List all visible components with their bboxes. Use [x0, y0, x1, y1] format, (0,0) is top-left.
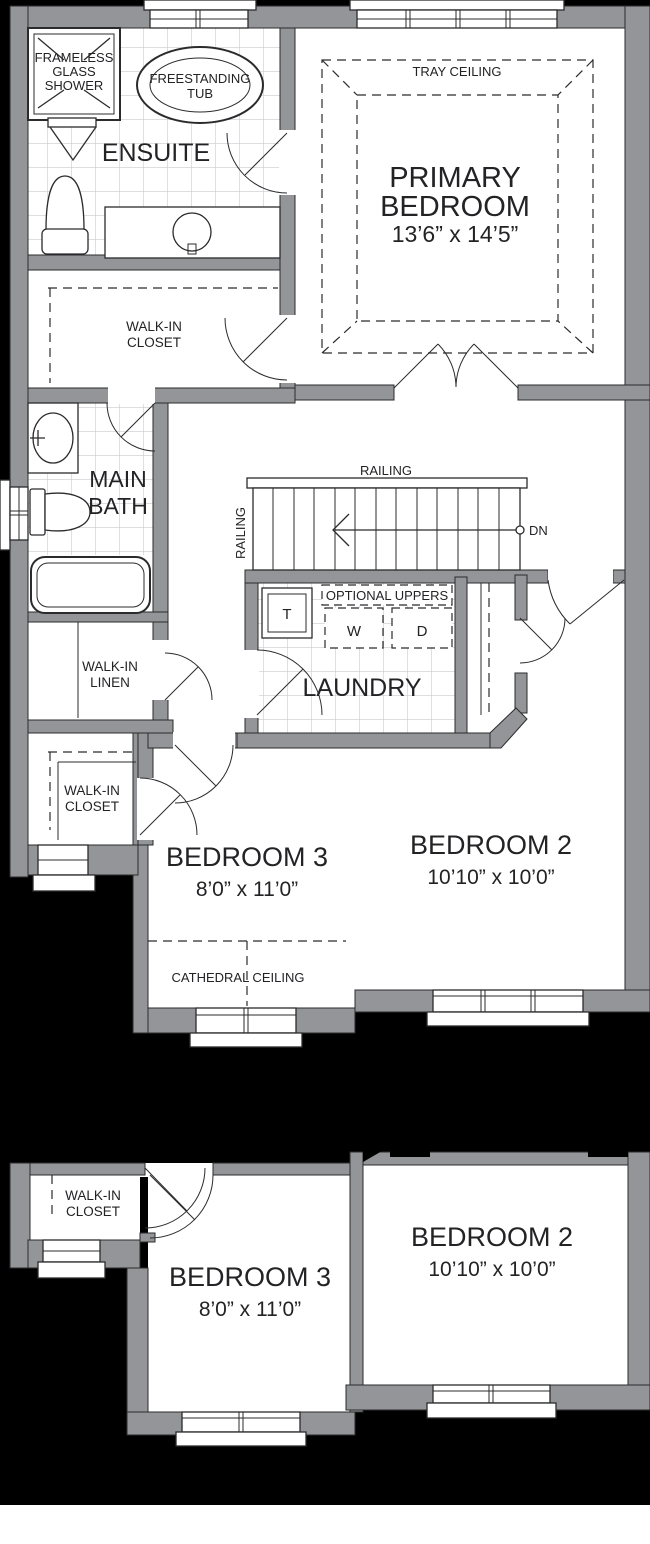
bedroom2-label: BEDROOM 2 — [410, 830, 572, 860]
bedroom2-window — [433, 990, 583, 1012]
closet-label-1: WALK-IN — [65, 1188, 121, 1203]
bedroom2-window — [433, 1385, 550, 1403]
primary-bedroom-label-1: PRIMARY — [389, 162, 521, 194]
bedroom3-dims: 8’0” x 11’0” — [199, 1298, 301, 1321]
washer-label: W — [347, 623, 362, 640]
shower-label-1: FRAMELESS — [35, 50, 114, 65]
door-gap — [140, 1163, 213, 1177]
window-sill — [350, 0, 564, 10]
window-sill — [427, 1403, 556, 1418]
tub-label-2: TUB — [187, 86, 213, 101]
mainbath-vanity — [28, 403, 78, 473]
bedroom3-label: BEDROOM 3 — [166, 842, 328, 872]
floorplan-page: FRAMELESS GLASS SHOWER FREESTANDING TUB … — [0, 0, 650, 1544]
shower-label-2: GLASS — [52, 64, 96, 79]
ensuite-vanity — [105, 207, 280, 258]
window-sill — [190, 1033, 302, 1047]
bedroom2-label: BEDROOM 2 — [411, 1222, 573, 1252]
tub-label-1: FREESTANDING — [150, 71, 251, 86]
walkin-closet-label-2: CLOSET — [127, 335, 181, 350]
ensuite-label: ENSUITE — [102, 139, 210, 167]
bedroom3-dims: 8’0” x 11’0” — [196, 878, 298, 901]
mainbath-tub — [31, 557, 150, 613]
floorplan-drawing: FRAMELESS GLASS SHOWER FREESTANDING TUB … — [0, 0, 650, 1544]
bottom-margin — [0, 1505, 650, 1544]
primary-bedroom-label-2: BEDROOM — [380, 191, 530, 223]
window-sill — [33, 875, 95, 891]
main-bath-label-2: BATH — [88, 493, 148, 519]
bedroom3-closet-label-2: CLOSET — [65, 799, 119, 814]
bedroom3-window — [196, 1008, 296, 1033]
window-sill — [144, 0, 256, 10]
laundry-label: LAUNDRY — [302, 674, 421, 702]
window-sill — [427, 1012, 589, 1026]
window-sill — [38, 1262, 105, 1278]
window-sill — [176, 1432, 306, 1446]
bedroom2-dims: 10’10” x 10’0” — [427, 866, 554, 889]
bedroom2-dims: 10’10” x 10’0” — [428, 1258, 555, 1281]
arrow-origin — [516, 526, 524, 534]
railing-side-label: RAILING — [233, 507, 248, 559]
railing-bar — [247, 478, 527, 488]
walkin-linen-label-1: WALK-IN — [82, 659, 138, 674]
optional-uppers-label: OPTIONAL UPPERS — [326, 588, 449, 603]
dryer-label: D — [417, 623, 428, 640]
bedroom3-window — [182, 1412, 300, 1432]
bedroom3-closet-label-1: WALK-IN — [64, 783, 120, 798]
walkin-linen-label-2: LINEN — [90, 675, 130, 690]
primary-bedroom-dims: 13’6” x 14’5” — [392, 221, 519, 247]
main-bath-label-1: MAIN — [89, 466, 147, 492]
tray-ceiling-label: TRAY CEILING — [412, 64, 501, 79]
laundry-tub-label: T — [282, 606, 291, 623]
cathedral-ceiling-label: CATHEDRAL CEILING — [172, 970, 305, 985]
stair-run — [253, 488, 520, 570]
shower-label-3: SHOWER — [45, 78, 104, 93]
stairs — [247, 478, 527, 570]
bedroom3-floor — [148, 1175, 350, 1412]
railing-top-label: RAILING — [360, 463, 412, 478]
dn-label: DN — [529, 523, 548, 538]
walkin-closet-label-1: WALK-IN — [126, 319, 182, 334]
closet-label-2: CLOSET — [66, 1204, 120, 1219]
window-sill — [0, 480, 10, 550]
bedroom3-label: BEDROOM 3 — [169, 1262, 331, 1292]
